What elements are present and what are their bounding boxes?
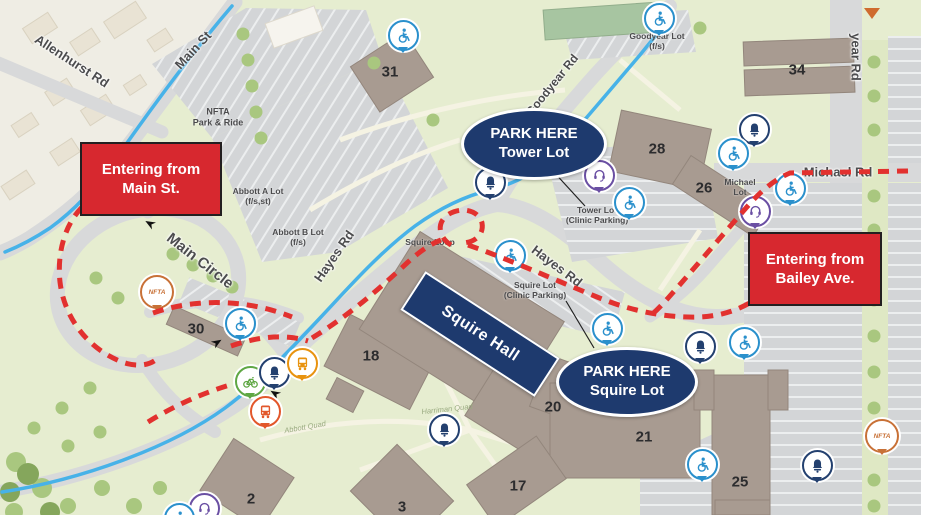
squire-hall-text: Squire Hall <box>438 302 523 366</box>
lot-label-michael-lot: MichaelLot <box>724 177 755 197</box>
building-number-3: 3 <box>398 499 406 516</box>
building-number-20: 20 <box>545 399 562 416</box>
lot-label-abbott-b-lot: Abbott B Lot(f/s) <box>272 227 323 247</box>
street-label-michael-rd: Michael Rd <box>804 165 873 180</box>
street-label-allenhurst-rd: Allenhurst Rd <box>32 31 112 90</box>
accessible-parking-icon[interactable] <box>495 240 526 271</box>
accessible-parking-icon[interactable] <box>644 3 675 34</box>
nfta-stop-marker[interactable]: NFTA <box>140 275 174 309</box>
street-label-main-circle: Main Circle <box>163 230 237 293</box>
emergency-bell-icon[interactable] <box>259 357 290 388</box>
building-number-31: 31 <box>382 64 399 81</box>
callout-line: Main St. <box>122 179 180 199</box>
lot-label-squire-loop: Squire Loop <box>405 237 455 247</box>
accessible-parking-icon[interactable] <box>225 308 256 339</box>
marker-tip-icon <box>864 8 880 19</box>
bus-stop-icon[interactable] <box>287 348 318 379</box>
quad-label-west: Abbott Quad <box>283 419 326 435</box>
shuttle-stop-icon[interactable] <box>250 396 281 427</box>
entering-from-bailey-callout: Entering from Bailey Ave. <box>748 232 882 306</box>
building-number-34: 34 <box>789 62 806 79</box>
building-number-2: 2 <box>247 491 255 508</box>
accessible-parking-icon[interactable] <box>775 173 806 204</box>
park-here-tower-callout: PARK HERE Tower Lot <box>461 108 607 180</box>
street-label-main-st: Main St <box>172 28 215 72</box>
building-number-18: 18 <box>363 348 380 365</box>
street-label-goodyear-rd-north: year Rd <box>849 33 864 81</box>
callout-line: Entering from <box>102 160 200 180</box>
map-canvas: Allenhurst RdMain StMain CircleHayes RdH… <box>0 0 921 515</box>
emergency-bell-icon[interactable] <box>685 331 716 362</box>
emergency-phone-icon[interactable] <box>740 196 771 227</box>
callout-line: Entering from <box>766 250 864 270</box>
lot-label-abbott-a-lot: Abbott A Lot(f/s,st) <box>233 186 284 206</box>
accessible-parking-icon[interactable] <box>388 20 419 51</box>
accessible-parking-icon[interactable] <box>729 327 760 358</box>
building-number-28: 28 <box>649 141 666 158</box>
lot-label-nfta-park-and-ride: NFTAPark & Ride <box>193 106 244 127</box>
callout-line: Bailey Ave. <box>776 269 855 289</box>
accessible-parking-icon[interactable] <box>718 138 749 169</box>
nfta-stop-marker[interactable]: NFTA <box>865 419 899 453</box>
park-here-squire-callout: PARK HERE Squire Lot <box>556 347 698 417</box>
building-number-21: 21 <box>636 429 653 446</box>
accessible-parking-icon[interactable] <box>592 313 623 344</box>
callout-line: Squire Lot <box>590 382 664 401</box>
campus-parking-map: Allenhurst RdMain StMain CircleHayes RdH… <box>0 0 926 532</box>
emergency-bell-icon[interactable] <box>739 114 770 145</box>
building-number-17: 17 <box>510 478 527 495</box>
building-number-26: 26 <box>696 180 713 197</box>
emergency-bell-icon[interactable] <box>802 450 833 481</box>
lot-label-squire-lot: Squire Lot(Clinic Parking) <box>504 280 566 300</box>
callout-line: PARK HERE <box>490 125 577 144</box>
accessible-parking-icon[interactable] <box>687 449 718 480</box>
emergency-bell-icon[interactable] <box>429 414 460 445</box>
callout-line: Tower Lot <box>499 144 570 163</box>
building-number-30: 30 <box>188 321 205 338</box>
accessible-parking-icon[interactable] <box>614 187 645 218</box>
entering-from-main-callout: Entering from Main St. <box>80 142 222 216</box>
building-number-25: 25 <box>732 474 749 491</box>
callout-line: PARK HERE <box>583 363 670 382</box>
